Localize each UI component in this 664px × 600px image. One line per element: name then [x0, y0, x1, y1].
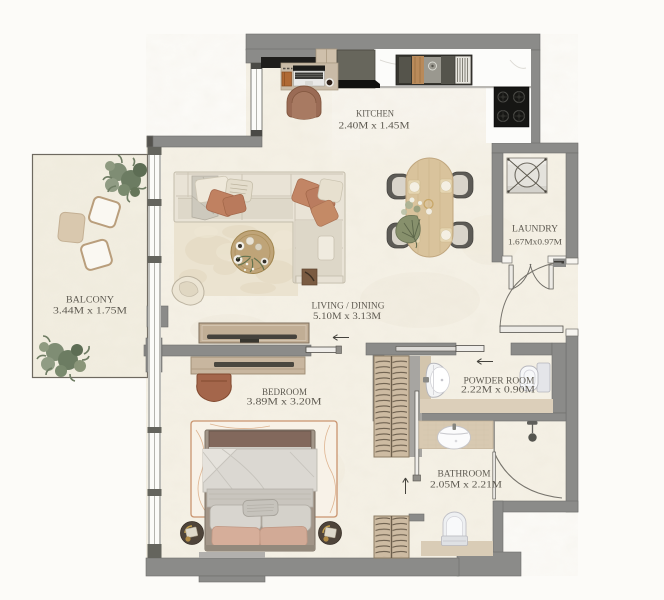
- svg-text:2.40M x 1.45M: 2.40M x 1.45M: [339, 121, 410, 132]
- svg-text:LAUNDRY: LAUNDRY: [512, 224, 558, 235]
- svg-text:2.05M x 2.21M: 2.05M x 2.21M: [430, 480, 502, 491]
- svg-text:3.89M x 3.20M: 3.89M x 3.20M: [247, 397, 322, 408]
- svg-text:2.22M x 0.90M: 2.22M x 0.90M: [461, 385, 535, 396]
- svg-text:LIVING / DINING: LIVING / DINING: [312, 301, 385, 312]
- svg-text:KITCHEN: KITCHEN: [356, 109, 394, 120]
- svg-text:BALCONY: BALCONY: [66, 295, 114, 306]
- svg-text:5.10M x 3.13M: 5.10M x 3.13M: [313, 311, 381, 322]
- svg-text:BATHROOM: BATHROOM: [438, 469, 491, 480]
- svg-text:3.44M x 1.75M: 3.44M x 1.75M: [53, 306, 127, 317]
- svg-text:1.67Mx0.97M: 1.67Mx0.97M: [508, 238, 563, 247]
